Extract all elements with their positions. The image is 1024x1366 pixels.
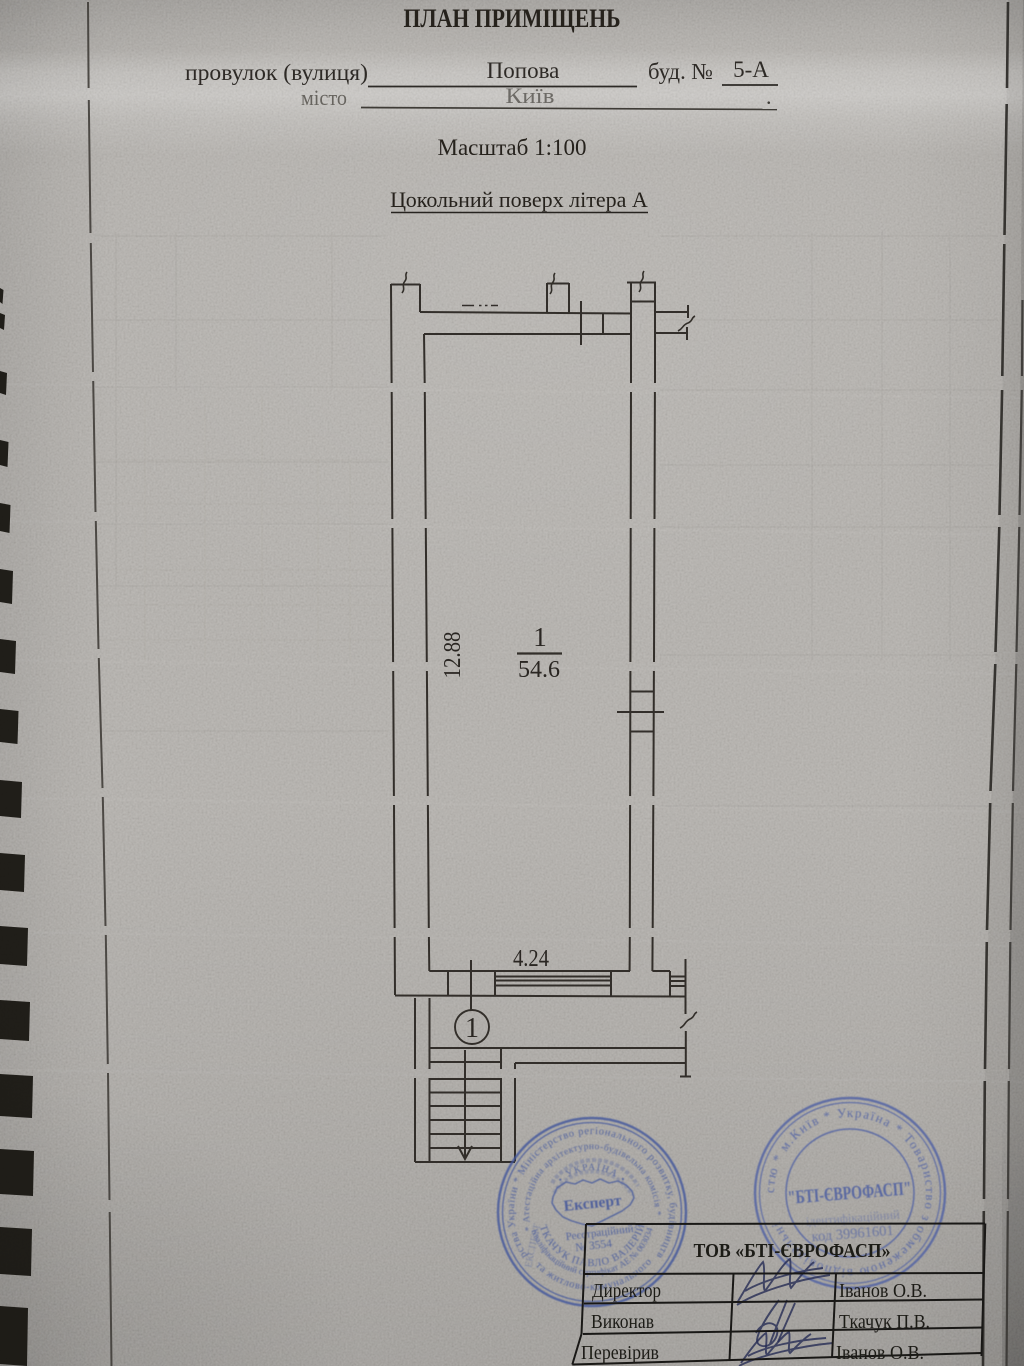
svg-text:Ткачук П.В.: Ткачук П.В. [839,1312,930,1333]
svg-text:Попова: Попова [487,58,560,83]
svg-text:1: 1 [465,1013,479,1044]
svg-text:54.6: 54.6 [518,657,560,683]
svg-text:.: . [766,84,772,109]
svg-text:Київ: Київ [506,83,555,108]
svg-text:4.24: 4.24 [513,946,549,972]
svg-text:Директор: Директор [592,1281,661,1302]
svg-text:Виконав: Виконав [591,1312,654,1333]
svg-text:Перевірив: Перевірив [581,1343,659,1364]
svg-text:буд. №: буд. № [648,59,713,84]
svg-text:Іванов О.В.: Іванов О.В. [836,1343,924,1364]
svg-text:місто: місто [301,85,347,110]
svg-text:Цокольний поверх літера А: Цокольний поверх літера А [390,187,648,212]
svg-text:5-А: 5-А [733,57,769,82]
svg-text:Масштаб 1:100: Масштаб 1:100 [438,135,587,160]
svg-text:12.88: 12.88 [440,632,466,679]
svg-text:Іванов О.В.: Іванов О.В. [839,1281,927,1302]
svg-text:ПЛАН ПРИМІЩЕНЬ: ПЛАН ПРИМІЩЕНЬ [404,4,621,33]
svg-text:1: 1 [533,622,547,652]
svg-text:ТОВ «БТІ-ЄВРОФАСП»: ТОВ «БТІ-ЄВРОФАСП» [694,1240,891,1262]
svg-text:провулок (вулиця): провулок (вулиця) [185,60,368,85]
